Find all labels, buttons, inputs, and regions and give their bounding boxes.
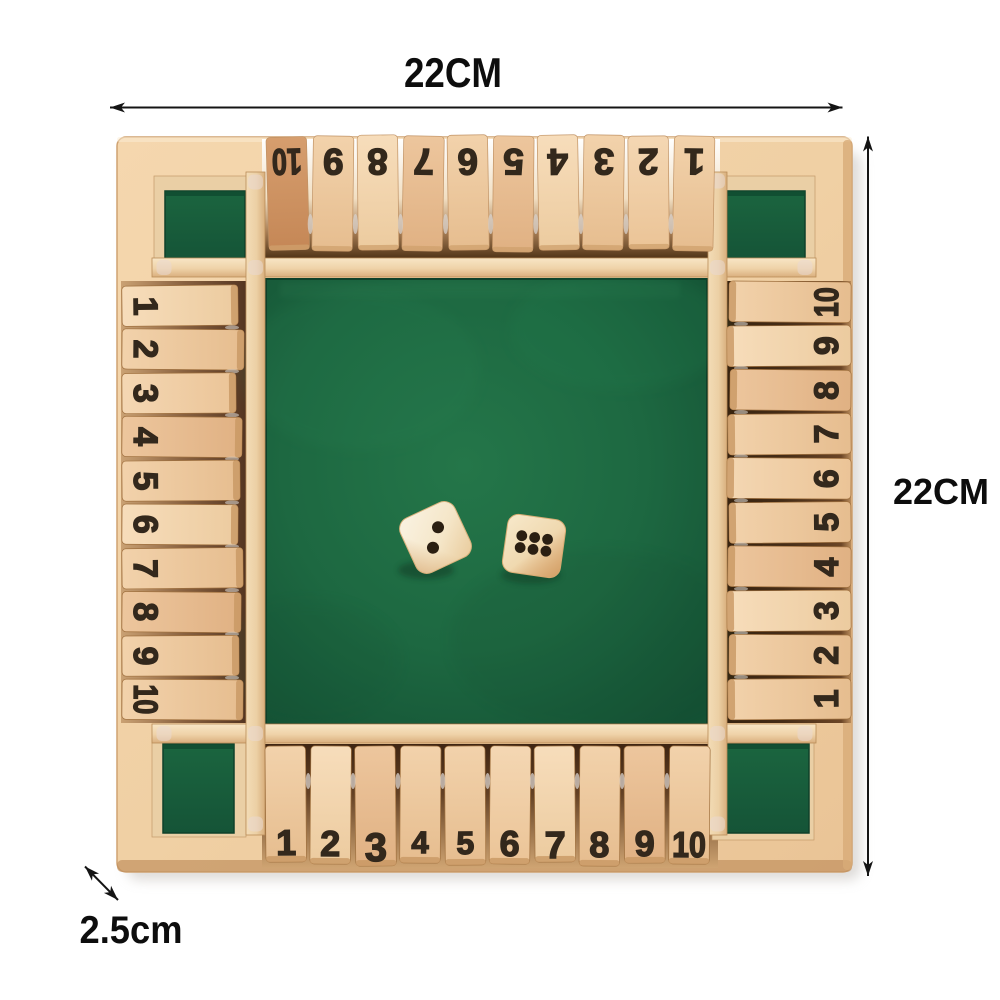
svg-text:2: 2 [638,141,659,182]
svg-text:5: 5 [126,471,164,490]
svg-text:8: 8 [808,381,846,400]
svg-text:8: 8 [367,141,388,182]
svg-text:8: 8 [589,824,609,865]
svg-text:5: 5 [503,141,524,182]
svg-text:9: 9 [126,646,164,665]
svg-text:7: 7 [545,825,567,867]
svg-text:6: 6 [808,469,846,488]
svg-text:3: 3 [364,826,387,870]
svg-text:2: 2 [126,339,164,358]
svg-text:10: 10 [808,287,846,317]
svg-text:3: 3 [593,141,614,182]
svg-text:6: 6 [499,823,519,864]
svg-text:4: 4 [411,825,429,860]
svg-text:4: 4 [547,141,569,182]
svg-text:5: 5 [456,825,474,861]
svg-text:10: 10 [672,824,706,865]
svg-text:2.5cm: 2.5cm [80,909,183,952]
svg-text:7: 7 [126,559,164,578]
svg-text:3: 3 [126,384,164,403]
svg-text:8: 8 [126,602,164,621]
svg-text:6: 6 [126,515,164,534]
svg-text:10: 10 [271,141,302,183]
svg-text:2: 2 [808,646,846,665]
svg-text:9: 9 [808,336,846,355]
svg-text:9: 9 [323,141,344,182]
svg-text:22CM: 22CM [893,471,989,512]
svg-text:9: 9 [635,823,655,864]
svg-text:4: 4 [126,427,164,446]
svg-text:1: 1 [684,141,705,182]
svg-text:7: 7 [413,141,434,182]
svg-text:3: 3 [808,601,846,620]
svg-text:6: 6 [457,141,478,182]
svg-text:7: 7 [808,424,846,443]
svg-text:10: 10 [126,684,164,714]
svg-text:1: 1 [808,689,846,708]
svg-text:1: 1 [276,822,296,863]
svg-text:4: 4 [808,557,846,576]
svg-text:5: 5 [808,512,846,531]
svg-text:1: 1 [126,296,164,315]
svg-text:2: 2 [320,823,340,864]
svg-text:22CM: 22CM [404,49,502,96]
